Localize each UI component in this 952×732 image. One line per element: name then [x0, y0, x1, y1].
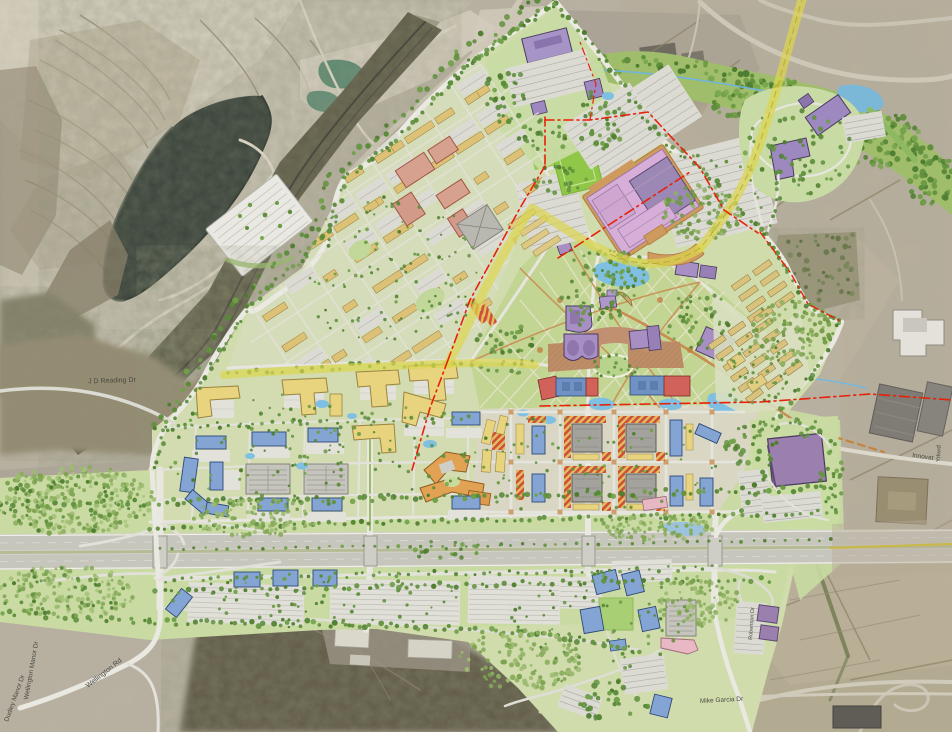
svg-text:Yrkwd: Yrkwd — [936, 445, 943, 462]
